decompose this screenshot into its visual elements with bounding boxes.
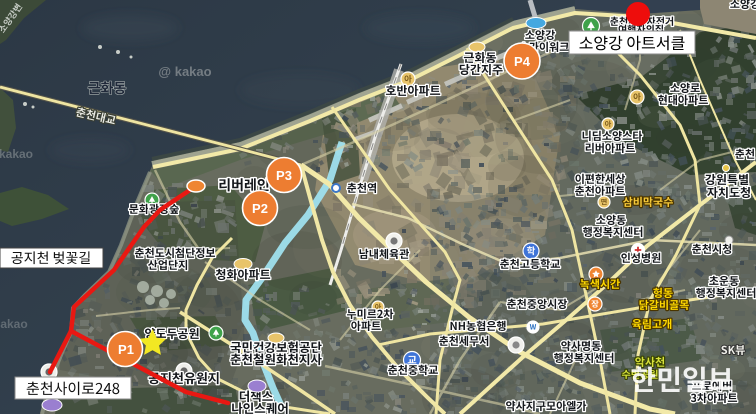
svg-text:@ kakao: @ kakao — [158, 64, 211, 79]
svg-text:P1: P1 — [118, 342, 134, 357]
svg-text:kakao: kakao — [0, 147, 33, 161]
svg-text:P4: P4 — [514, 54, 531, 69]
svg-text:akao: akao — [0, 317, 27, 331]
svg-text:P2: P2 — [252, 201, 268, 216]
svg-text:P3: P3 — [276, 168, 292, 183]
